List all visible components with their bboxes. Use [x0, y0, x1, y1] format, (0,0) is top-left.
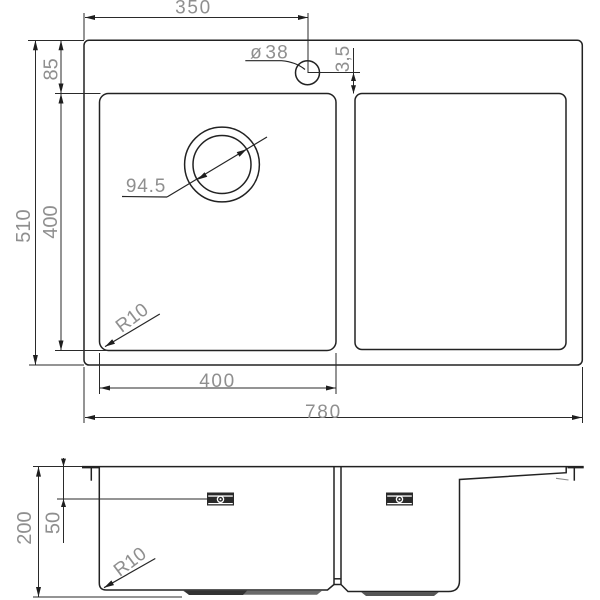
svg-text:50: 50 — [43, 512, 65, 534]
svg-text:350: 350 — [175, 0, 212, 19]
svg-text:780: 780 — [305, 402, 342, 423]
svg-text:400: 400 — [40, 205, 62, 238]
svg-text:200: 200 — [14, 511, 36, 544]
svg-text:94.5: 94.5 — [126, 176, 166, 197]
svg-text:3,5: 3,5 — [333, 46, 354, 72]
svg-text:400: 400 — [199, 371, 236, 392]
svg-text:85: 85 — [41, 58, 63, 80]
svg-text:510: 510 — [13, 209, 35, 242]
